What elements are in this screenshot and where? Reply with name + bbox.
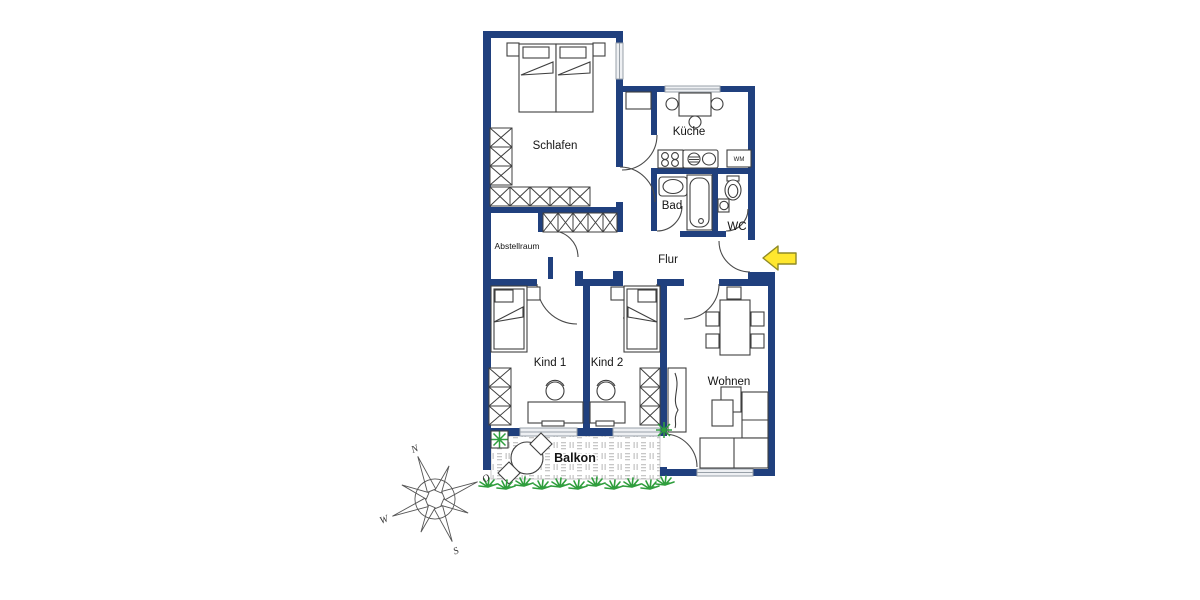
corner-sink-icon: [718, 199, 729, 212]
door-arc-balkon: [664, 434, 697, 467]
nightstand-icon: [527, 287, 540, 300]
floor-plan-canvas: WM: [0, 0, 1200, 600]
wardrobe-icon: [489, 368, 511, 425]
wall-segment: [651, 92, 657, 135]
dining-chair-icon: [751, 334, 764, 348]
wall-segment: [753, 469, 775, 476]
toilet-icon: [725, 176, 741, 200]
wall-segment: [660, 279, 667, 434]
washing-machine-label: WM: [734, 157, 745, 163]
wall-segment: [712, 174, 718, 231]
kitchen-chair-icon: [711, 98, 723, 110]
desk-icon: [528, 402, 583, 426]
bathroom-sink-icon: [659, 177, 687, 196]
wall-segment: [583, 286, 590, 436]
wall-segment: [577, 428, 613, 436]
floor-plan-page: WM: [0, 0, 1200, 600]
wall-segment: [680, 231, 712, 237]
wall-segment: [483, 31, 623, 38]
room-label-wohnen: Wohnen: [708, 376, 751, 388]
door-arc-kueche: [622, 135, 657, 170]
door-arc-schlafen: [620, 167, 655, 202]
dining-chair-icon: [706, 312, 719, 326]
wall-segment: [651, 168, 755, 174]
dining-table-icon: [706, 287, 764, 355]
compass-label-south: S: [452, 545, 461, 557]
wall-segment: [719, 279, 775, 286]
dining-chair-icon: [751, 312, 764, 326]
compass-label-west: W: [378, 513, 391, 527]
wall-segment: [483, 279, 537, 286]
single-bed-icon: [491, 286, 540, 352]
room-label-schlafen: Schlafen: [533, 140, 578, 152]
wall-segment: [651, 174, 657, 231]
plant-icon: [656, 422, 672, 438]
compass-label-north: N: [409, 443, 421, 457]
bathtub-icon: [687, 175, 712, 230]
dining-chair-icon: [727, 287, 741, 299]
nightstand-icon: [611, 287, 624, 300]
wall-segment: [768, 279, 775, 476]
balcony-planter-icon: [491, 431, 508, 448]
room-label-kueche: Küche: [673, 126, 706, 138]
wardrobe-icon: [640, 368, 660, 425]
door-arc-abstellraum: [552, 231, 578, 257]
hall-wardrobe-icon: [543, 213, 617, 232]
door-arc-kind1: [537, 284, 577, 324]
wall-segment: [712, 231, 726, 237]
stove-icon: [658, 150, 683, 168]
wall-segment: [613, 271, 623, 286]
wall-segment: [548, 257, 553, 279]
washing-machine-icon: WM: [727, 150, 751, 167]
kitchen-table-icon: [666, 93, 723, 128]
desk-icon: [590, 402, 625, 426]
room-label-wc: WC: [727, 221, 746, 233]
tv-board-icon: [668, 368, 686, 432]
wall-segment: [616, 79, 623, 167]
wall-segment: [483, 207, 623, 213]
door-arc-entrance: [719, 241, 750, 272]
wall-segment: [538, 213, 543, 232]
coffee-table-icon: [712, 387, 741, 426]
room-label-kind1: Kind 1: [534, 357, 567, 369]
entrance-arrow-icon: [763, 246, 796, 270]
kitchen-chair-icon: [666, 98, 678, 110]
wall-segment: [616, 38, 623, 43]
double-bed-icon: [507, 43, 605, 112]
kitchen-sink-icon: [683, 150, 718, 168]
wall-segment: [660, 467, 667, 476]
wall-segment: [748, 272, 775, 279]
dining-chair-icon: [706, 334, 719, 348]
kitchen-cupboard-icon: [626, 92, 651, 109]
room-label-abstellraum: Abstellraum: [495, 241, 540, 251]
desk-chair-icon: [597, 380, 615, 400]
room-label-flur: Flur: [658, 254, 678, 266]
desk-chair-icon: [546, 380, 564, 400]
room-label-kind2: Kind 2: [591, 357, 624, 369]
room-label-balkon: Balkon: [554, 451, 596, 465]
single-bed-icon: [611, 286, 660, 352]
room-label-bad: Bad: [662, 200, 682, 212]
